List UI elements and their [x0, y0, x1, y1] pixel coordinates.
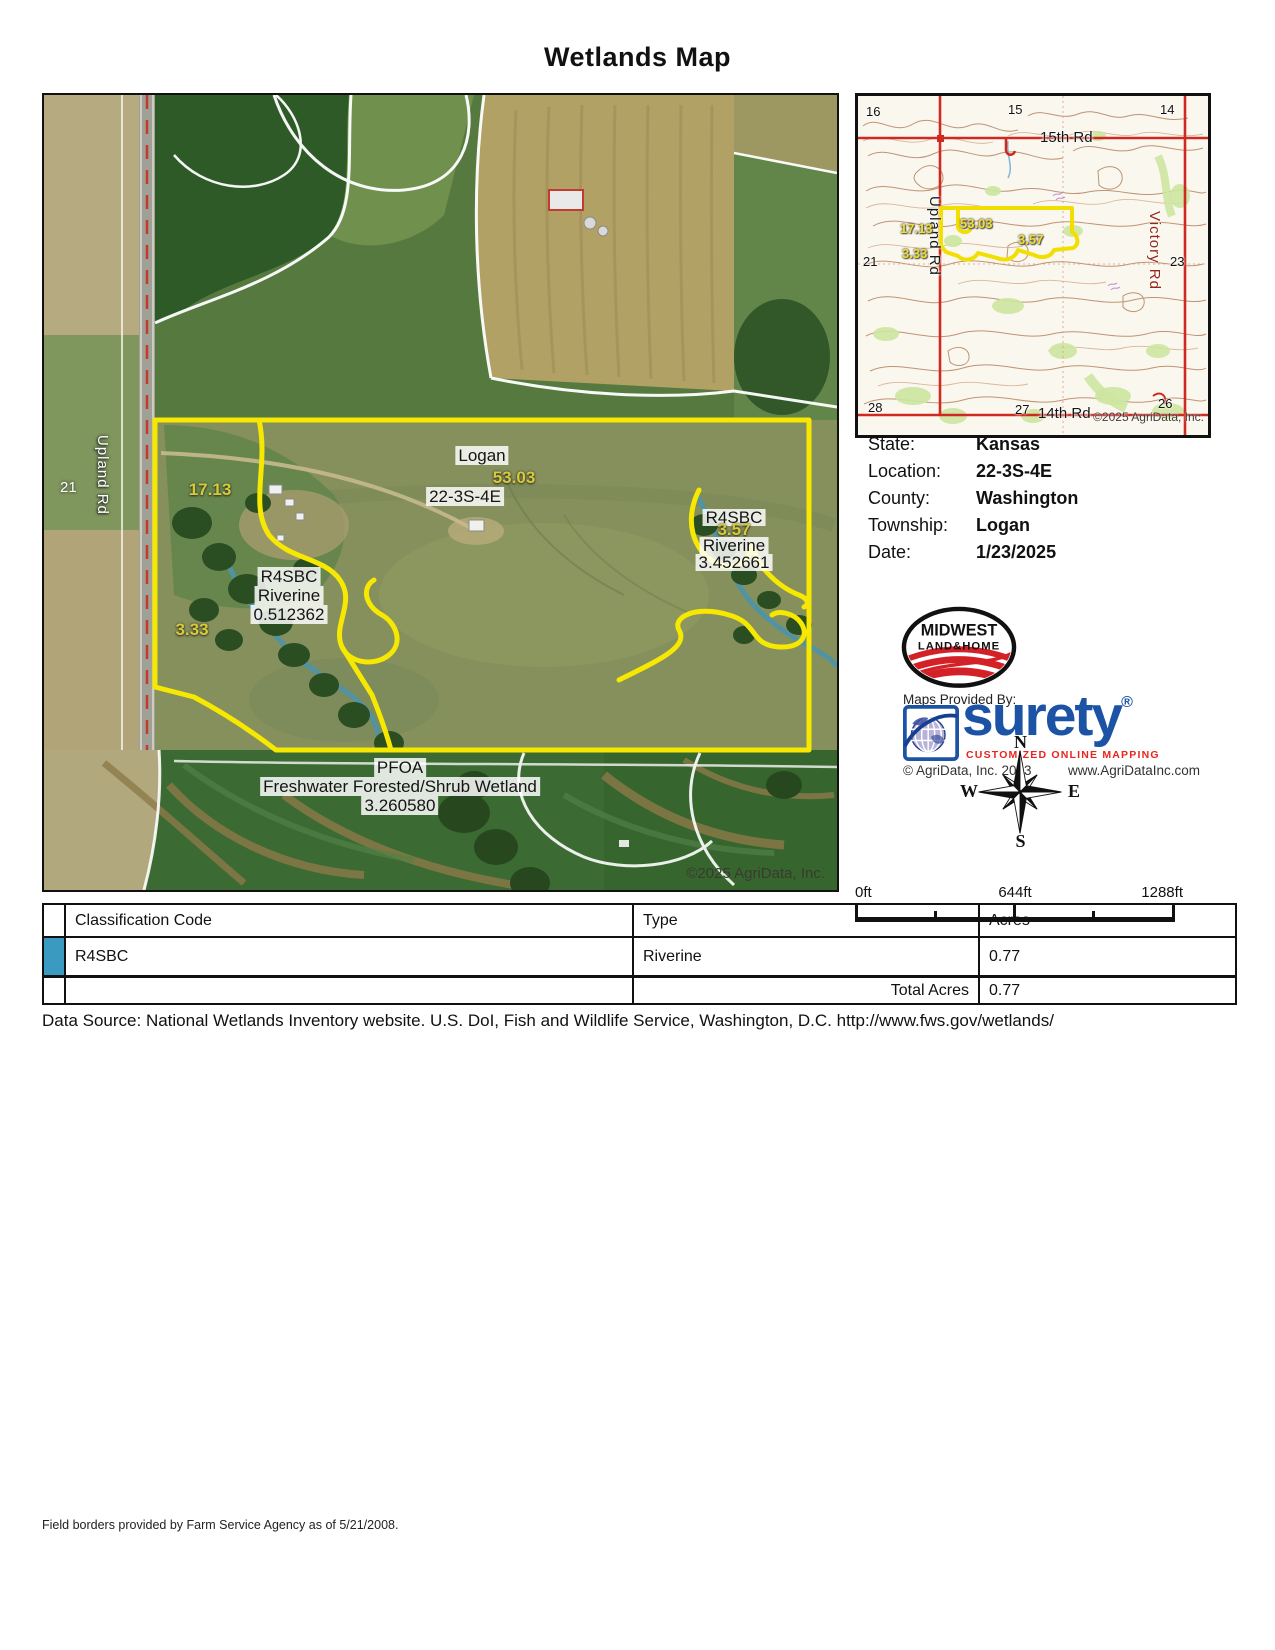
wetland-south-type: Freshwater Forested/Shrub Wetland: [260, 777, 540, 796]
header-classification-code: Classification Code: [65, 904, 633, 937]
parcel-acres-3-33: 3.33: [175, 620, 208, 640]
inset-acres-53: 53.03: [960, 216, 993, 231]
main-map-copyright: ©2025 AgriData, Inc.: [686, 865, 825, 882]
scale-end-label: 1288ft: [1141, 884, 1183, 901]
midwest-land-home-logo: MIDWEST LAND&HOME: [900, 606, 1018, 690]
table-header-row: Classification Code Type Acres: [43, 904, 1236, 937]
inset-section-26: 26: [1158, 396, 1172, 411]
topo-inset-map: 16 15 14 21 23 28 27 26 15th Rd 14th Rd …: [855, 93, 1211, 438]
info-label-date: Date:: [868, 542, 976, 563]
compass-west-label: W: [960, 781, 978, 802]
parcel-acres-3-57: 3.57: [717, 522, 750, 537]
inset-section-15: 15: [1008, 102, 1022, 117]
main-map-road-label: Upland Rd: [94, 435, 111, 515]
wetland-label-south: PFOA Freshwater Forested/Shrub Wetland 3…: [260, 758, 540, 815]
row-type: Riverine: [633, 937, 979, 977]
compass-rose-icon: [975, 746, 1065, 838]
parcel-acres-17: 17.13: [189, 480, 232, 500]
total-empty-cell: [65, 977, 633, 1005]
info-value-county: Washington: [976, 488, 1078, 509]
total-swatch-cell: [43, 977, 65, 1005]
header-acres: Acres: [979, 904, 1236, 937]
total-acres-value: 0.77: [979, 977, 1236, 1005]
township-label: Logan: [455, 446, 508, 465]
aerial-map: Upland Rd 21 Logan 53.03 22-3S-4E 17.13 …: [42, 93, 839, 892]
table-row: R4SBC Riverine 0.77: [43, 937, 1236, 977]
inset-section-16: 16: [866, 104, 880, 119]
wetland-west-type: Riverine: [255, 586, 323, 605]
page-title: Wetlands Map: [0, 42, 1275, 73]
inset-road-15th: 15th Rd: [1040, 129, 1093, 146]
info-label-location: Location:: [868, 461, 976, 482]
footer-note: Field borders provided by Farm Service A…: [42, 1518, 398, 1532]
wetland-label-west: R4SBC Riverine 0.512362: [251, 567, 328, 624]
inset-road-14th: 14th Rd: [1038, 405, 1091, 422]
wetland-south-code: PFOA: [374, 758, 426, 777]
section-id: 22-3S-4E: [426, 487, 504, 506]
info-label-township: Township:: [868, 515, 976, 536]
row-color-swatch: [43, 937, 65, 977]
scale-start-label: 0ft: [855, 884, 872, 901]
main-map-section-21: 21: [60, 479, 77, 496]
parcel-acres-53: 53.03: [493, 468, 536, 488]
info-label-state: State:: [868, 434, 976, 455]
midwest-logo-line1: MIDWEST: [921, 621, 998, 639]
wetland-label-east: R4SBC 3.57 Riverine 3.452661: [696, 509, 773, 571]
wetlands-map-page: Wetlands Map: [0, 0, 1275, 1650]
inset-road-victory: Victory Rd: [1146, 211, 1163, 290]
info-row-state: State: Kansas: [868, 434, 1213, 455]
inset-section-21: 21: [863, 254, 877, 269]
info-value-date: 1/23/2025: [976, 542, 1056, 563]
info-label-county: County:: [868, 488, 976, 509]
scale-mid-label: 644ft: [998, 884, 1031, 901]
midwest-logo-image: MIDWEST LAND&HOME: [900, 606, 1018, 689]
inset-section-27: 27: [1015, 402, 1029, 417]
inset-copyright: ©2025 AgriData, Inc.: [1093, 410, 1204, 424]
header-type: Type: [633, 904, 979, 937]
inset-section-14: 14: [1160, 102, 1174, 117]
info-value-township: Logan: [976, 515, 1030, 536]
surety-registered-mark: ®: [1121, 694, 1133, 711]
info-row-township: Township: Logan: [868, 515, 1213, 536]
township-name: Logan: [455, 446, 508, 465]
inset-section-23: 23: [1170, 254, 1184, 269]
info-row-location: Location: 22-3S-4E: [868, 461, 1213, 482]
info-row-date: Date: 1/23/2025: [868, 542, 1213, 563]
header-swatch-cell: [43, 904, 65, 937]
wetland-west-acres: 0.512362: [251, 605, 328, 624]
section-label: 22-3S-4E: [426, 487, 504, 506]
compass-east-label: E: [1068, 781, 1080, 802]
compass-south-label: S: [958, 831, 1083, 852]
table-total-row: Total Acres 0.77: [43, 977, 1236, 1005]
inset-section-28: 28: [868, 400, 882, 415]
wetland-west-code: R4SBC: [258, 567, 321, 586]
inset-acres-17: 17.13: [900, 221, 933, 236]
inset-acres-3-57: 3.57: [1018, 232, 1043, 247]
wetland-east-acres: 3.452661: [696, 554, 773, 571]
data-source-note: Data Source: National Wetlands Inventory…: [42, 1011, 1054, 1031]
wetland-south-acres: 3.260580: [362, 796, 439, 815]
midwest-logo-line2: LAND&HOME: [918, 640, 1000, 652]
info-row-county: County: Washington: [868, 488, 1213, 509]
inset-acres-3-33: 3.33: [902, 246, 927, 261]
info-value-state: Kansas: [976, 434, 1040, 455]
surety-globe-icon: [903, 705, 959, 761]
wetlands-classification-table: Classification Code Type Acres R4SBC Riv…: [42, 903, 1237, 1005]
row-classification-code: R4SBC: [65, 937, 633, 977]
wetland-east-type: Riverine: [700, 537, 768, 554]
compass-north-label: N: [958, 732, 1083, 753]
compass-rose: N S W E: [958, 735, 1083, 850]
agridata-url: www.AgriDataInc.com: [1068, 763, 1200, 778]
total-acres-label: Total Acres: [633, 977, 979, 1005]
row-acres: 0.77: [979, 937, 1236, 977]
info-value-location: 22-3S-4E: [976, 461, 1052, 482]
